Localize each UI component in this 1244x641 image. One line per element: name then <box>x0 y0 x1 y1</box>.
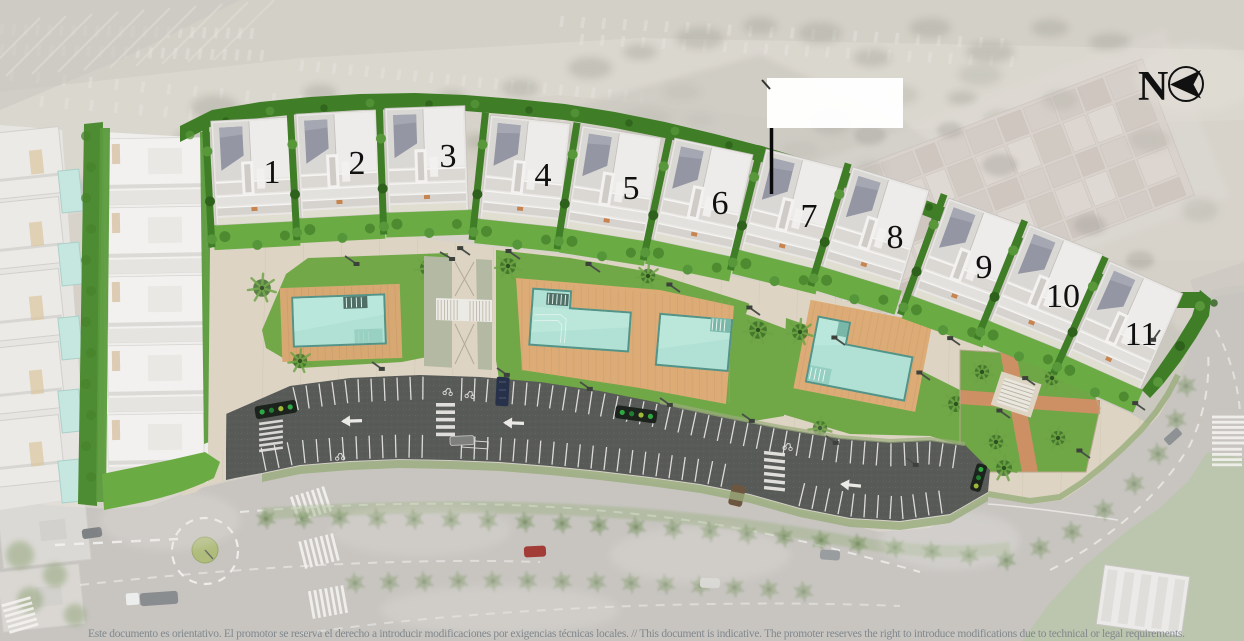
svg-text:1: 1 <box>264 154 281 191</box>
svg-text:3: 3 <box>440 138 457 175</box>
svg-text:10: 10 <box>1046 278 1080 315</box>
svg-text:8: 8 <box>887 219 904 256</box>
svg-text:7: 7 <box>801 198 818 235</box>
svg-text:4: 4 <box>535 157 552 194</box>
svg-text:11: 11 <box>1125 316 1158 353</box>
svg-text:Este documento es orientativo.: Este documento es orientativo. El promot… <box>88 628 1185 640</box>
svg-text:6: 6 <box>712 185 729 222</box>
svg-text:9: 9 <box>976 249 993 286</box>
svg-text:5: 5 <box>623 170 640 207</box>
svg-text:N: N <box>1138 64 1168 110</box>
svg-text:2: 2 <box>349 145 366 182</box>
